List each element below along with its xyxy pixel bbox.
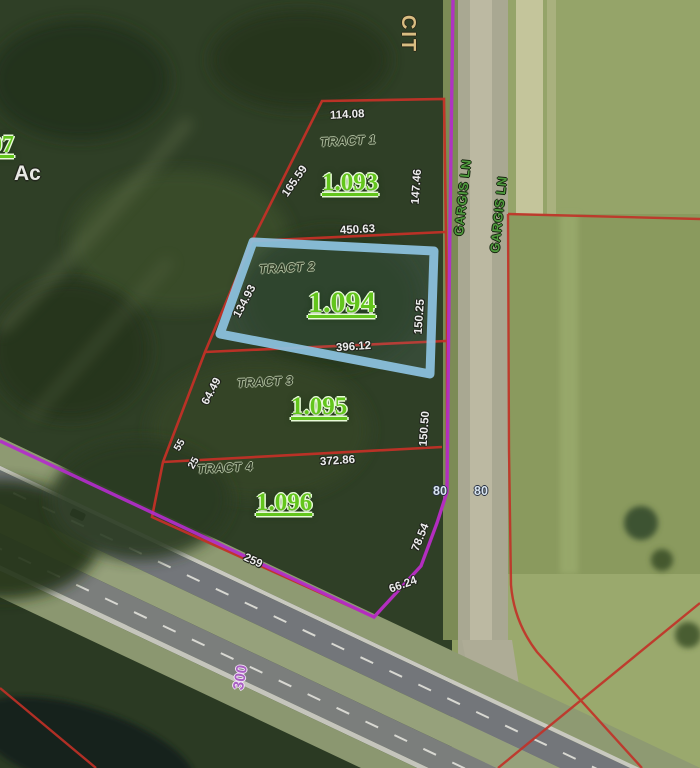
adjacent-parcel-number: 07 xyxy=(0,133,14,157)
row-width-left: 80 xyxy=(433,485,447,498)
tract3-label: TRACT 3 xyxy=(237,375,294,390)
adjacent-parcel-acreage: Ac xyxy=(14,163,41,184)
tract4-label: TRACT 4 xyxy=(197,461,254,476)
parcel-number-1093: 1.093 xyxy=(322,170,378,195)
dim-tract3-right: 150.50 xyxy=(419,411,433,447)
dim-tract2-right: 150.25 xyxy=(414,299,428,335)
parcel-number-1096: 1.096 xyxy=(256,490,312,515)
parcel-number-1094-selected[interactable]: 1.094 xyxy=(308,288,376,318)
aerial-parcel-map[interactable]: CIT 07 Ac 114.08 TRACT 1 1.093 165.59 14… xyxy=(0,0,700,768)
dim-tract2-bottom: 396.12 xyxy=(336,341,372,355)
dim-tract1-right: 147.46 xyxy=(411,169,425,205)
dim-tract2-top: 450.63 xyxy=(340,224,376,237)
highway-dim-300: 300 xyxy=(231,664,250,691)
dim-tract1-top: 114.08 xyxy=(330,109,365,122)
row-width-right: 80 xyxy=(474,485,488,498)
city-limit-label: CIT xyxy=(398,15,418,53)
tract2-label: TRACT 2 xyxy=(259,261,316,276)
tract1-label: TRACT 1 xyxy=(320,134,377,149)
parcel-number-1095: 1.095 xyxy=(291,394,347,419)
dim-tract3-bottom: 372.86 xyxy=(320,455,356,469)
